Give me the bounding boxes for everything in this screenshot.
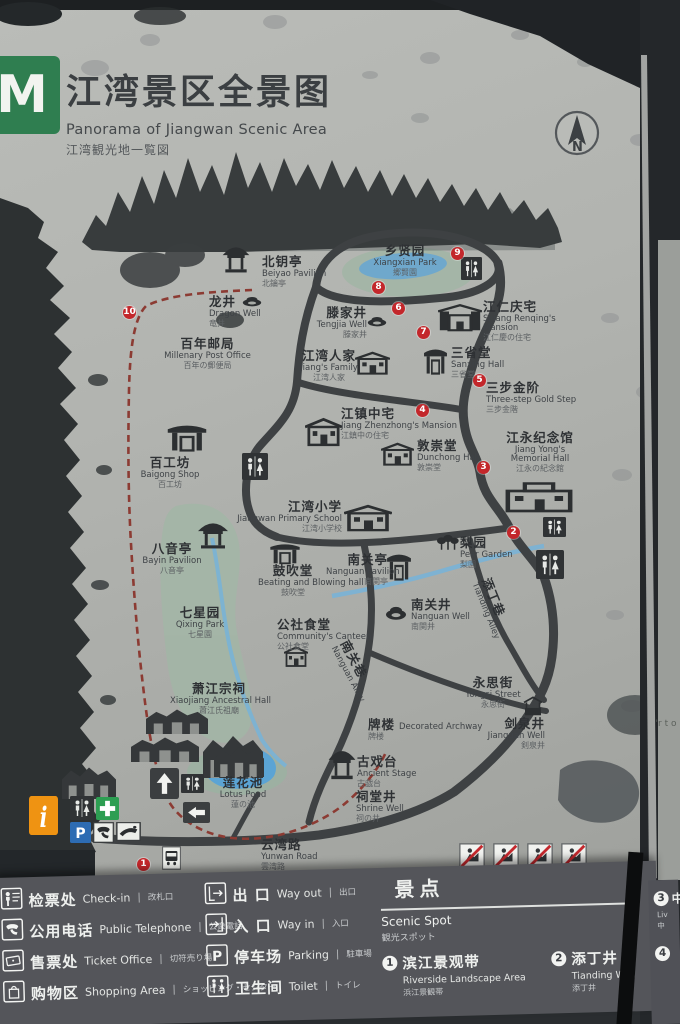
legend-row-parking: P停车场Parking|駐車場 bbox=[206, 940, 372, 970]
legend-en: Parking bbox=[288, 948, 329, 962]
legend-bar: 检票处Check-in|改札口公用电话Public Telephone|公衆電話… bbox=[0, 861, 660, 1024]
legend-row-wayout: 出 口Way out|出口 bbox=[204, 879, 356, 909]
parking-icon: P bbox=[206, 944, 229, 971]
legend-cn: 停车场 bbox=[234, 945, 283, 967]
compass-rose: N bbox=[549, 106, 605, 166]
scenic-item-riverside: 1 滨江景观带 Riverside Landscape Area 浜江景観帯 bbox=[382, 949, 526, 999]
sign-title-jp: 江湾観光地一覧図 bbox=[66, 141, 332, 158]
adjacent-sign-edge-text: 'r t o bbox=[655, 716, 677, 733]
legend-en: Way out bbox=[277, 886, 322, 900]
legend-cn: 售票处 bbox=[30, 950, 79, 972]
telephone-icon bbox=[1, 918, 24, 945]
legend-cn: 公用电话 bbox=[29, 919, 94, 942]
legend-separator: | bbox=[329, 887, 333, 898]
legend-cn: 购物区 bbox=[31, 981, 80, 1003]
check-in-icon bbox=[0, 887, 23, 914]
brand-logo: M bbox=[0, 56, 60, 134]
legend-row-checkin: 检票处Check-in|改札口 bbox=[0, 883, 173, 914]
legend-jp: 出口 bbox=[339, 886, 356, 898]
scenic-number-badge: 2 bbox=[551, 951, 566, 966]
legend-en: Ticket Office bbox=[84, 952, 152, 967]
legend-separator: | bbox=[325, 980, 329, 991]
legend-cn: 检票处 bbox=[28, 888, 77, 910]
legend-separator: | bbox=[172, 984, 176, 995]
brand-logo-letter: M bbox=[0, 65, 48, 125]
scenic-title-cn: 景点 bbox=[394, 867, 646, 903]
scenic-spot-section: 景点 Scenic Spot 観光スポット 1 滨江景观带 Riverside … bbox=[380, 867, 648, 998]
toilet-icon bbox=[207, 975, 230, 1002]
legend-separator: | bbox=[321, 918, 325, 929]
scenic-item-cn: 添丁井 bbox=[571, 946, 618, 968]
scenic-number-badge: 4 bbox=[655, 945, 670, 960]
legend-cn: 入 口 bbox=[233, 914, 272, 936]
photo-background: M 江湾景区全景图 Panorama of Jiangwan Scenic Ar… bbox=[0, 0, 680, 1024]
legend-row-wayin: 入 口Way in|入口 bbox=[205, 910, 349, 940]
shopping-bag-icon bbox=[3, 980, 26, 1007]
legend-jp: トイレ bbox=[335, 978, 361, 991]
scenic-item-cn: 滨江景观带 bbox=[402, 950, 480, 973]
legend-en: Way in bbox=[277, 917, 314, 931]
legend-separator: | bbox=[137, 892, 141, 903]
adjacent-sign-legend-fragment: 3 中 Liv 中 4 bbox=[648, 880, 680, 1024]
legend-cn: 出 口 bbox=[232, 883, 271, 905]
legend-jp: 改札口 bbox=[148, 890, 174, 903]
legend-separator: | bbox=[336, 949, 340, 960]
legend-en: Shopping Area bbox=[85, 983, 166, 998]
scenic-item-jp: 浜江景観帯 bbox=[403, 984, 526, 998]
ticket-icon bbox=[2, 949, 25, 976]
scenic-number-badge: 3 bbox=[653, 891, 668, 906]
legend-separator: | bbox=[198, 921, 202, 932]
legend-separator: | bbox=[159, 953, 163, 964]
sign-title-cn: 江湾景区全景图 bbox=[66, 64, 332, 115]
legend-en: Check-in bbox=[82, 891, 130, 905]
legend-en: Public Telephone bbox=[99, 920, 191, 935]
legend-jp: 駐車場 bbox=[346, 947, 372, 960]
legend-en: Toilet bbox=[289, 979, 318, 993]
legend-row-toilet: 卫生间Toilet|トイレ bbox=[207, 971, 361, 1001]
legend-jp: 入口 bbox=[332, 917, 349, 929]
legend-cn: 卫生间 bbox=[235, 976, 284, 998]
svg-text:P: P bbox=[212, 949, 222, 965]
way-out-icon bbox=[204, 882, 227, 909]
scenic-number-badge: 1 bbox=[382, 955, 397, 970]
compass-north-label: N bbox=[572, 140, 583, 155]
title-block: 江湾景区全景图 Panorama of Jiangwan Scenic Area… bbox=[66, 64, 332, 158]
way-in-icon bbox=[205, 913, 228, 940]
legend-row-ticket: 售票处Ticket Office|切符売り場 bbox=[2, 944, 213, 975]
sign-title-en: Panorama of Jiangwan Scenic Area bbox=[66, 122, 332, 138]
